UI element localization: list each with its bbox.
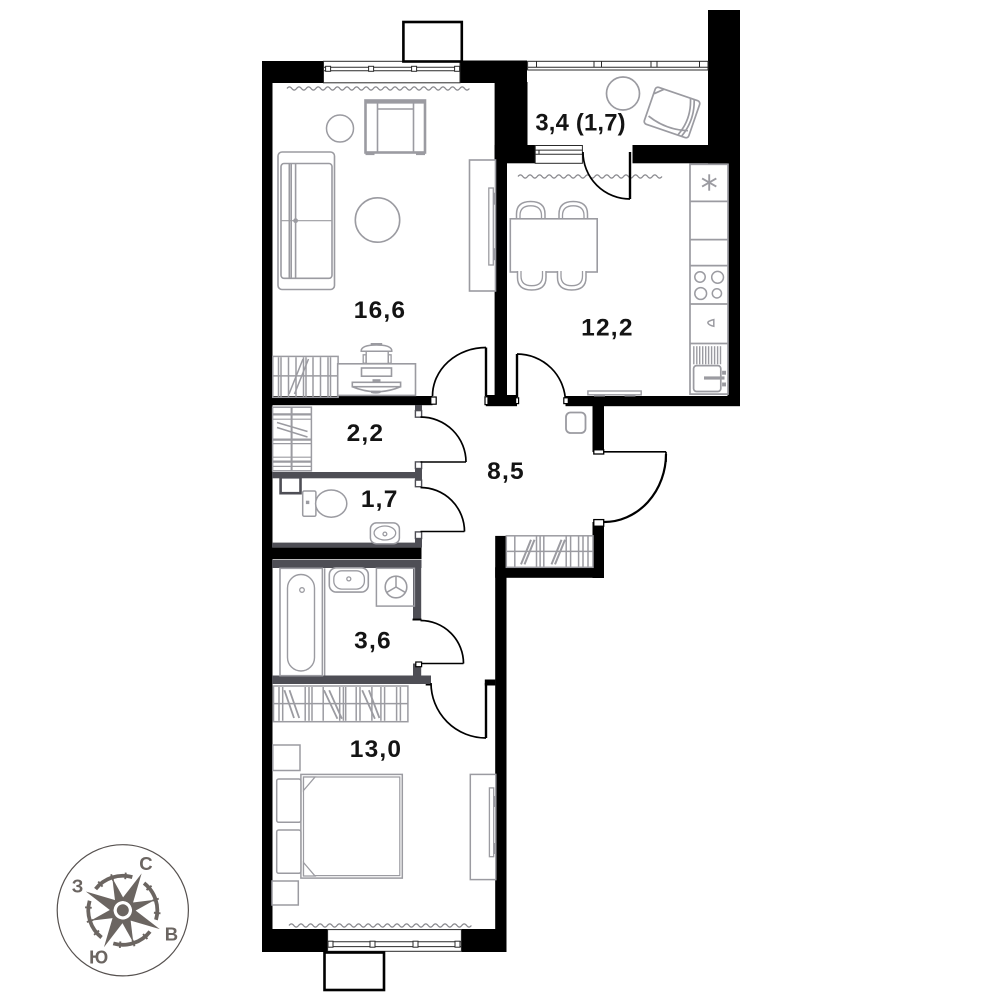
svg-text:С: С [139, 853, 152, 874]
svg-text:3,4 (1,7): 3,4 (1,7) [535, 110, 625, 137]
svg-text:12,2: 12,2 [581, 315, 633, 342]
svg-text:В: В [165, 923, 178, 944]
svg-text:8,5: 8,5 [487, 458, 525, 485]
svg-text:13,0: 13,0 [350, 736, 402, 763]
svg-text:1,7: 1,7 [361, 486, 399, 513]
svg-text:З: З [72, 876, 84, 897]
svg-text:2,2: 2,2 [347, 420, 385, 447]
svg-text:Ю: Ю [89, 947, 108, 968]
svg-text:3,6: 3,6 [354, 628, 392, 655]
svg-text:16,6: 16,6 [354, 297, 406, 324]
